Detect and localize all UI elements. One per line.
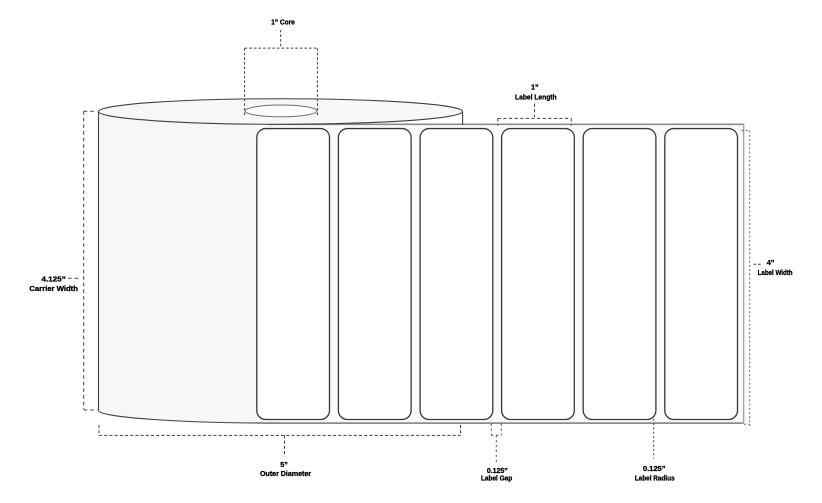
svg-text:Label Gap: Label Gap bbox=[481, 474, 513, 483]
svg-text:Label Width: Label Width bbox=[758, 268, 793, 277]
svg-text:1”: 1” bbox=[531, 83, 539, 92]
svg-text:Carrier Width: Carrier Width bbox=[29, 284, 78, 293]
svg-text:Outer Diameter: Outer Diameter bbox=[260, 469, 311, 478]
svg-text:5”: 5” bbox=[280, 460, 288, 469]
svg-text:4”: 4” bbox=[767, 258, 775, 267]
svg-text:0.125”: 0.125” bbox=[643, 464, 666, 473]
svg-text:Label Length: Label Length bbox=[515, 92, 557, 101]
svg-text:4.125”: 4.125” bbox=[41, 274, 66, 283]
svg-text:Label Radius: Label Radius bbox=[635, 473, 675, 482]
svg-text:1” Core: 1” Core bbox=[271, 18, 295, 27]
